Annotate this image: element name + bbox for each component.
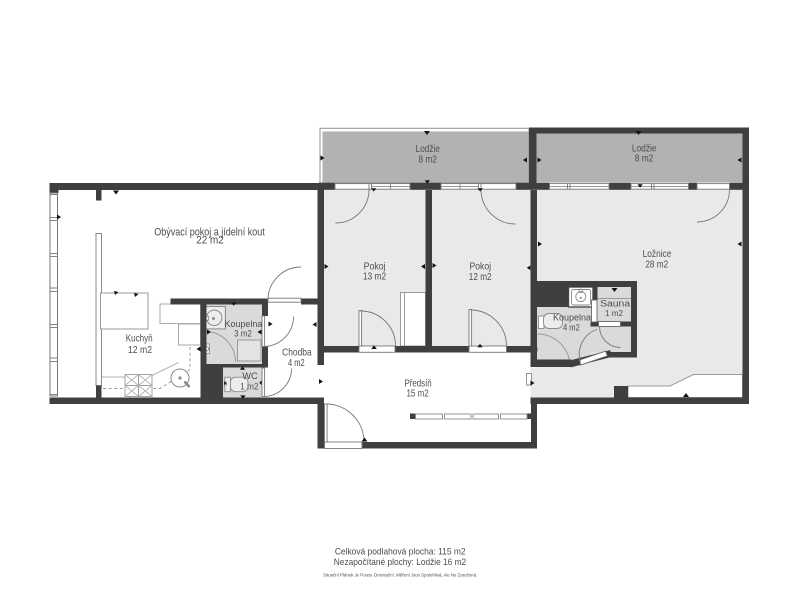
svg-text:Chodba: Chodba — [282, 347, 312, 358]
svg-text:Sauna: Sauna — [600, 299, 630, 309]
svg-text:Koupelna: Koupelna — [553, 312, 591, 322]
svg-text:Nezapočítané plochy: Lodžie 16: Nezapočítané plochy: Lodžie 16 m2 — [334, 557, 466, 568]
svg-text:Ložnice: Ložnice — [643, 249, 672, 260]
svg-text:22 m2: 22 m2 — [196, 235, 224, 247]
svg-text:Situační Plánek Je Pouze Orien: Situační Plánek Je Pouze Orientační, Měř… — [323, 573, 477, 578]
svg-text:13 m2: 13 m2 — [363, 272, 387, 283]
svg-text:WC: WC — [242, 371, 258, 382]
svg-text:Kuchyň: Kuchyň — [126, 333, 153, 345]
svg-text:Lodžie: Lodžie — [632, 143, 657, 154]
svg-text:12 m2: 12 m2 — [128, 344, 152, 356]
svg-text:1 m2: 1 m2 — [605, 308, 623, 318]
svg-text:1 m2: 1 m2 — [240, 382, 258, 393]
svg-text:8 m2: 8 m2 — [635, 154, 654, 165]
svg-text:8 m2: 8 m2 — [418, 154, 437, 165]
svg-text:28 m2: 28 m2 — [645, 260, 668, 271]
svg-text:4 m2: 4 m2 — [563, 323, 580, 333]
svg-text:3 m2: 3 m2 — [234, 329, 252, 340]
svg-text:15 m2: 15 m2 — [406, 389, 429, 400]
svg-text:Pokoj: Pokoj — [470, 261, 492, 272]
svg-text:12 m2: 12 m2 — [469, 272, 492, 283]
svg-text:4 m2: 4 m2 — [288, 358, 305, 369]
svg-text:Celková podlahová plocha: 115: Celková podlahová plocha: 115 m2 — [335, 547, 466, 558]
